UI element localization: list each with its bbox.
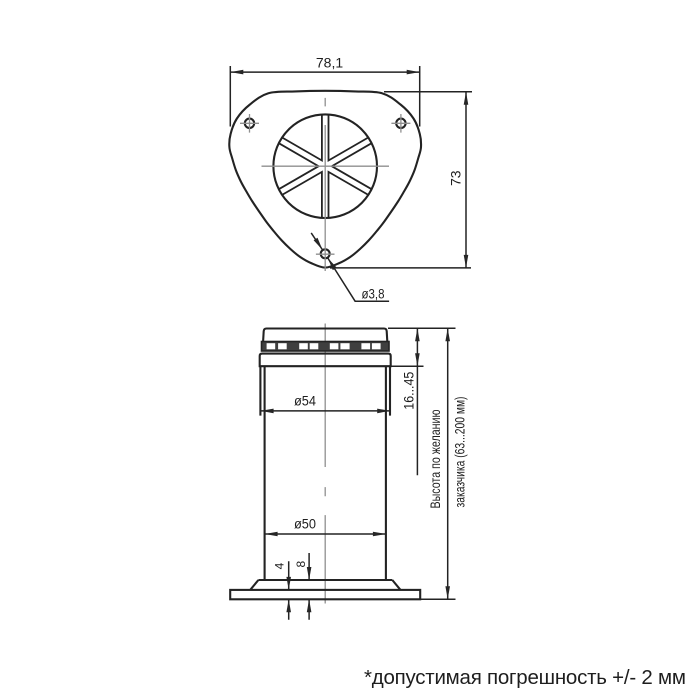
svg-text:ø50: ø50: [294, 517, 316, 532]
svg-text:заказчика (63...200 мм): заказчика (63...200 мм): [452, 397, 468, 508]
svg-text:ø3,8: ø3,8: [362, 286, 385, 301]
svg-text:4: 4: [273, 562, 287, 569]
svg-text:8: 8: [294, 560, 308, 567]
svg-text:ø54: ø54: [294, 394, 316, 409]
svg-text:73: 73: [448, 170, 464, 186]
svg-text:Высота по желанию: Высота по желанию: [427, 410, 443, 509]
svg-text:*допустимая погрешность +/- 2: *допустимая погрешность +/- 2 мм: [364, 666, 686, 689]
svg-text:78,1: 78,1: [316, 55, 343, 71]
svg-text:16...45: 16...45: [402, 372, 417, 410]
